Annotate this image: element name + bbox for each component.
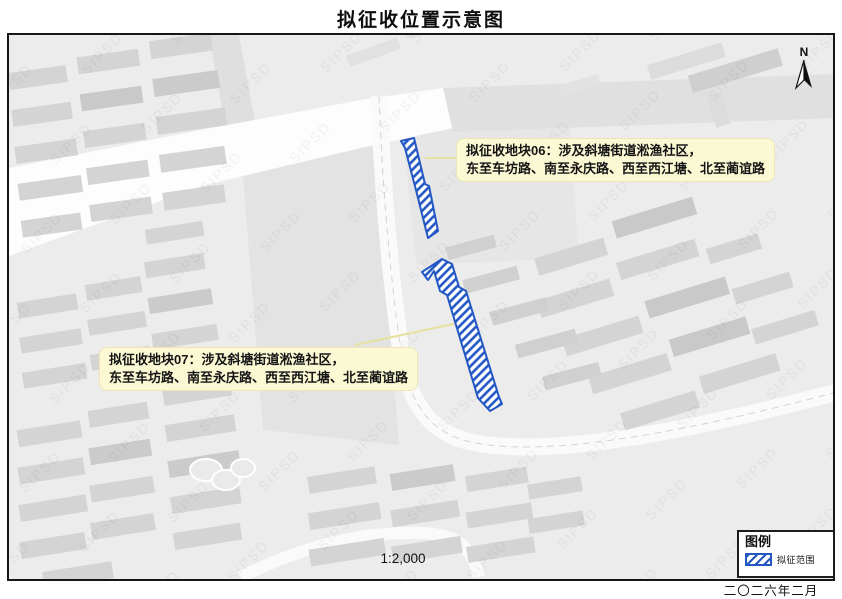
callout-07-line2: 东至车坊路、南至永庆路、西至西江塘、北至蔺谊路 xyxy=(109,369,408,387)
callout-06-line2: 东至车坊路、南至永庆路、西至西江塘、北至蔺谊路 xyxy=(466,160,765,178)
map-canvas: SIPSD SIPSD xyxy=(9,35,833,579)
callout-07-line1: 拟征收地块07：涉及斜塘街道淞渔社区， xyxy=(109,351,408,369)
legend-item-label: 拟征范围 xyxy=(777,553,815,566)
legend-box: 图例 拟征范围 xyxy=(737,530,835,578)
blue-diagonal-hatch-icon xyxy=(745,553,772,566)
legend-title: 图例 xyxy=(745,534,827,550)
callout-06-line1: 拟征收地块06：涉及斜塘街道淞渔社区， xyxy=(466,142,765,160)
legend-item: 拟征范围 xyxy=(745,553,827,566)
scale-label: 1:2,000 xyxy=(340,551,466,566)
map-frame: SIPSD SIPSD xyxy=(7,33,835,581)
page-title: 拟征收位置示意图 xyxy=(0,5,842,32)
callout-parcel-07: 拟征收地块07：涉及斜塘街道淞渔社区， 东至车坊路、南至永庆路、西至西江塘、北至… xyxy=(99,347,418,391)
callout-parcel-06: 拟征收地块06：涉及斜塘街道淞渔社区， 东至车坊路、南至永庆路、西至西江塘、北至… xyxy=(456,138,775,182)
page: { "title": "拟征收位置示意图", "map": { "scale_l… xyxy=(0,0,842,595)
north-label: N xyxy=(800,45,809,59)
watermark-layer xyxy=(9,35,833,579)
date-label: 二〇二六年二月 xyxy=(706,580,836,599)
